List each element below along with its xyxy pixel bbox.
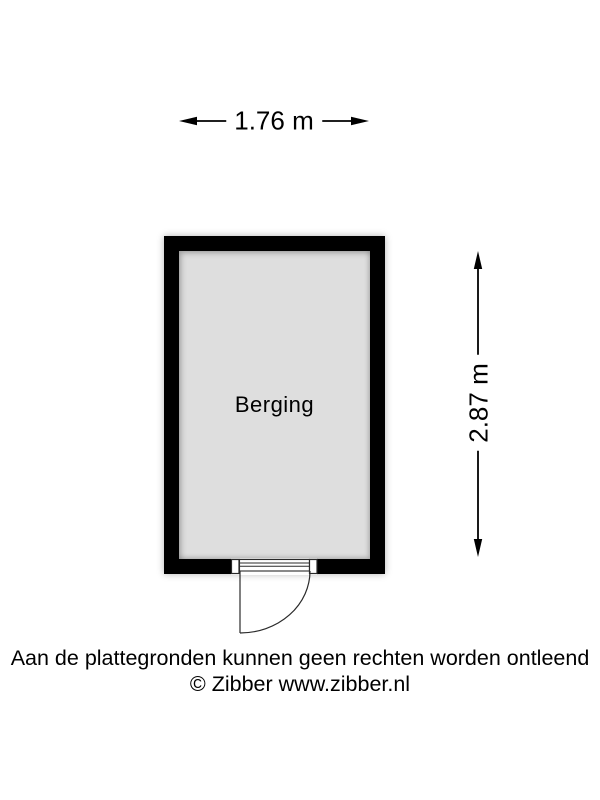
arrowhead-right-icon — [351, 117, 369, 125]
copyright-text: © Zibber www.zibber.nl — [0, 672, 600, 697]
door-jamb-right — [310, 560, 318, 574]
height-dimension-label: 2.87 m — [464, 355, 495, 451]
door-icon — [225, 550, 325, 640]
disclaimer-text: Aan de plattegronden kunnen geen rechten… — [0, 646, 600, 671]
door-swing-arc — [240, 571, 310, 633]
width-dimension-label: 1.76 m — [226, 106, 322, 137]
arrowhead-down-icon — [474, 539, 482, 557]
floorplan-canvas: 1.76 m 2.87 m Berging Aan de plattegrond… — [0, 0, 600, 800]
arrowhead-up-icon — [474, 251, 482, 269]
door-jamb-left — [232, 560, 240, 574]
room-label: Berging — [235, 392, 314, 418]
arrowhead-left-icon — [179, 117, 197, 125]
door-threshold — [240, 560, 310, 572]
room-berging: Berging — [164, 236, 385, 574]
